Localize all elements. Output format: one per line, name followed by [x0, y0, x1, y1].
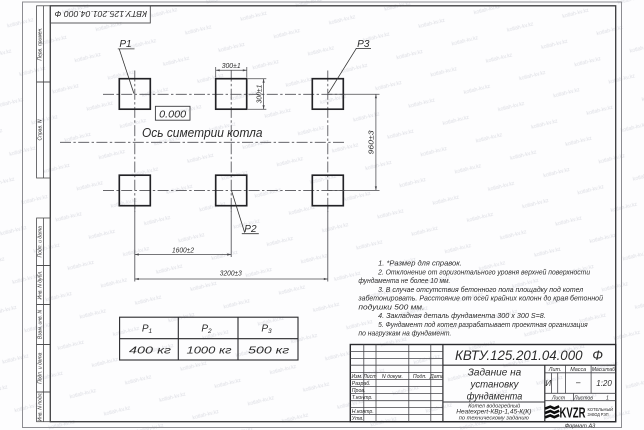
svg-text:по нагрузкам на фундамент.: по нагрузкам на фундамент.	[358, 329, 451, 338]
svg-text:KVZR: KVZR	[560, 405, 586, 421]
svg-text:400 кг: 400 кг	[129, 345, 171, 356]
svg-text:3200±3: 3200±3	[220, 271, 242, 278]
svg-text:300±1: 300±1	[257, 84, 264, 103]
svg-text:Масса: Масса	[570, 367, 586, 373]
svg-text:Лист: Лист	[551, 395, 566, 401]
svg-text:500 кг: 500 кг	[248, 345, 289, 356]
svg-text:Утв.: Утв.	[352, 416, 364, 422]
svg-text:4. Закладная деталь фундамента: 4. Закладная деталь фундамента 300 x 300…	[378, 311, 546, 320]
svg-text:Лист: Лист	[362, 374, 377, 380]
svg-text:ЗАВОД РЭП: ЗАВОД РЭП	[588, 412, 609, 417]
svg-text:Разраб.: Разраб.	[352, 381, 371, 387]
svg-text:Пров.: Пров.	[352, 388, 366, 394]
svg-text:5. Фундамент под котел разраба: 5. Фундамент под котел разрабатывает про…	[378, 320, 588, 329]
svg-text:Инв. N дубл.: Инв. N дубл.	[37, 271, 43, 300]
svg-text:P1: P1	[119, 39, 131, 50]
svg-text:Листов: Листов	[573, 395, 593, 401]
svg-text:2. Отклонение от горизонтально: 2. Отклонение от горизонтального уровня …	[377, 268, 591, 277]
svg-text:Подп.: Подп.	[413, 374, 427, 380]
svg-text:1:20: 1:20	[596, 379, 612, 388]
svg-text:установку: установку	[470, 379, 520, 391]
svg-text:Т.контр.: Т.контр.	[352, 395, 373, 401]
svg-text:Ось симетрии котла: Ось симетрии котла	[142, 126, 263, 140]
svg-text:–: –	[575, 378, 581, 387]
svg-text:Масштаб: Масштаб	[592, 367, 616, 373]
svg-text:Изм.: Изм.	[351, 374, 362, 380]
svg-text:3. В случае отсутствия бетонно: 3. В случае отсутствия бетонного пола пл…	[378, 285, 584, 294]
svg-text:по техническому заданию: по техническому заданию	[459, 416, 530, 422]
svg-text:Формат А3: Формат А3	[565, 424, 596, 430]
svg-text:Подп. и дата: Подп. и дата	[37, 352, 43, 384]
svg-text:Подп. и дата: Подп. и дата	[37, 226, 43, 258]
svg-text:фундамента: фундамента	[467, 391, 523, 403]
svg-text:1000 кг: 1000 кг	[187, 345, 232, 356]
svg-text:Ф: Ф	[592, 348, 603, 363]
svg-text:КВТУ.125.201.04.000: КВТУ.125.201.04.000	[455, 348, 583, 363]
svg-text:300±1: 300±1	[222, 63, 241, 70]
svg-text:0.000: 0.000	[159, 108, 186, 120]
svg-text:подушки 500 мм.: подушки 500 мм.	[358, 303, 424, 312]
svg-text:N докум.: N докум.	[382, 374, 403, 380]
svg-text:Справ. N: Справ. N	[37, 119, 43, 140]
svg-text:Н.контр.: Н.контр.	[352, 409, 374, 415]
svg-text:КОТЕЛЬНЫЙ: КОТЕЛЬНЫЙ	[588, 405, 614, 412]
svg-text:1: 1	[606, 395, 609, 401]
svg-text:Задание на: Задание на	[468, 366, 522, 378]
svg-text:960±3: 960±3	[369, 130, 376, 154]
svg-text:Перв. примен.: Перв. примен.	[37, 27, 43, 60]
svg-text:Инв. N подл.: Инв. N подл.	[37, 392, 43, 421]
svg-text:фундамента не более 10 мм.: фундамента не более 10 мм.	[358, 276, 450, 285]
svg-text:1. *Размер для справок.: 1. *Размер для справок.	[378, 259, 462, 268]
svg-text:И: И	[545, 379, 551, 388]
svg-text:Взам. инв. N: Взам. инв. N	[37, 310, 43, 340]
svg-text:P2: P2	[244, 224, 257, 235]
svg-text:Котел водогрейный: Котел водогрейный	[468, 403, 521, 410]
svg-text:Дата: Дата	[429, 374, 444, 380]
svg-text:КВТУ.125.201.04.000 Ф: КВТУ.125.201.04.000 Ф	[54, 9, 147, 18]
svg-text:1600±2: 1600±2	[172, 247, 194, 254]
svg-text:Лит.: Лит.	[548, 367, 562, 373]
svg-text:забетонировать. Расстояние от: забетонировать. Расстояние от осей крайн…	[357, 294, 603, 303]
